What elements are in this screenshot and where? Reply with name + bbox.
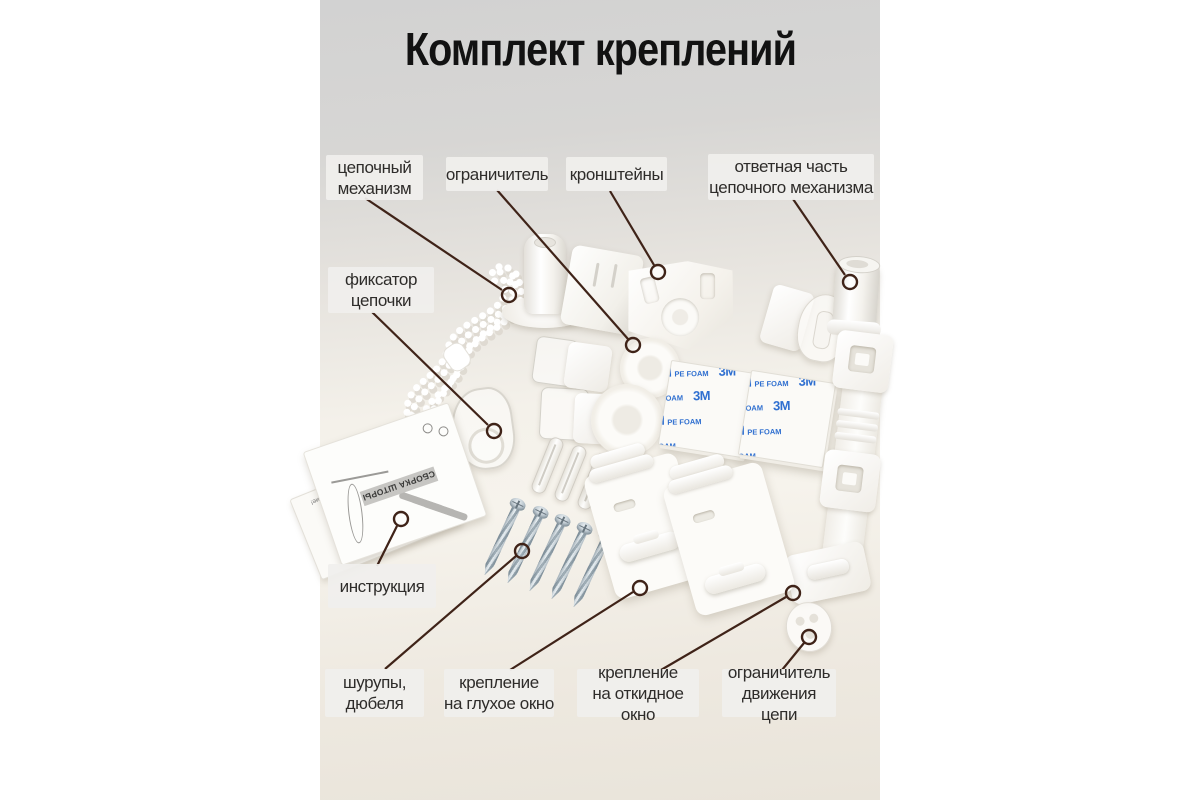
bracket-slit xyxy=(611,264,618,288)
strip-clip xyxy=(819,449,882,513)
bracket-slot xyxy=(639,276,660,305)
foam-brand-text: 3M xyxy=(693,388,710,403)
leaflet-stripe xyxy=(398,491,444,513)
leaflet-step-marker xyxy=(437,425,450,438)
label-chain-fixator: фиксатор цепочки xyxy=(328,267,434,313)
label-fixed-window-mount: крепление на глухое окно xyxy=(444,669,554,717)
bracket-boss xyxy=(659,296,701,338)
bracket-slit xyxy=(592,263,599,287)
label-screws-dowels: шурупы, дюбеля xyxy=(325,669,424,717)
plate-slot xyxy=(613,498,637,513)
chain-mechanism-part xyxy=(524,234,566,314)
chain-counterpart-part xyxy=(832,261,881,334)
plate-bar xyxy=(703,562,768,596)
leaflet-step-marker xyxy=(421,422,434,435)
foam-pad-3m: 3MPE FOAM3M 3MPE FOAM3M 3MPE FOAM 3MPE F… xyxy=(738,370,836,468)
label-tilt-window-mount: крепление на откидное окно xyxy=(577,669,699,717)
label-stopper: ограничитель xyxy=(446,157,548,191)
foam-brand-sub: PE FOAM xyxy=(747,427,781,437)
plate-slot xyxy=(692,509,716,524)
label-chain-mechanism: цепочный механизм xyxy=(326,155,423,200)
label-chain-counterpart: ответная часть цепочного механизма xyxy=(708,154,874,200)
bracket-slot xyxy=(700,273,715,299)
page-title: Комплект креплений xyxy=(320,22,880,76)
fixator-ring xyxy=(466,425,507,466)
strip-clip xyxy=(832,329,895,393)
bracket-foot-tab xyxy=(806,558,850,581)
foam-brand-sub: PE FOAM xyxy=(674,369,708,379)
plate-bar xyxy=(618,530,683,564)
white-clip-part xyxy=(563,341,613,393)
leaflet-diagram-line xyxy=(331,471,388,484)
clutch-hole xyxy=(534,237,556,248)
strip-clip-hole xyxy=(848,345,877,374)
label-instruction: инструкция xyxy=(328,564,436,608)
foam-brand-sub: PE FOAM xyxy=(667,417,701,427)
page-title-text: Комплект креплений xyxy=(404,22,795,76)
foam-brand-text: 3M xyxy=(773,398,790,413)
strip-clip-hole xyxy=(835,464,864,493)
label-brackets: кронштейны xyxy=(566,157,667,191)
strip-ridges xyxy=(834,408,880,447)
foam-brand-sub: PE FOAM xyxy=(754,379,788,389)
foam-pad-print: 3MPE FOAM3M 3MPE FOAM3M 3MPE FOAM 3MPE F… xyxy=(738,370,836,468)
label-chain-motion-limiter: ограничитель движения цепи xyxy=(722,669,836,717)
product-annotation-image: 3MPE FOAM3M 3MPE FOAM3M 3MPE FOAM 3MPE F… xyxy=(0,0,1200,800)
